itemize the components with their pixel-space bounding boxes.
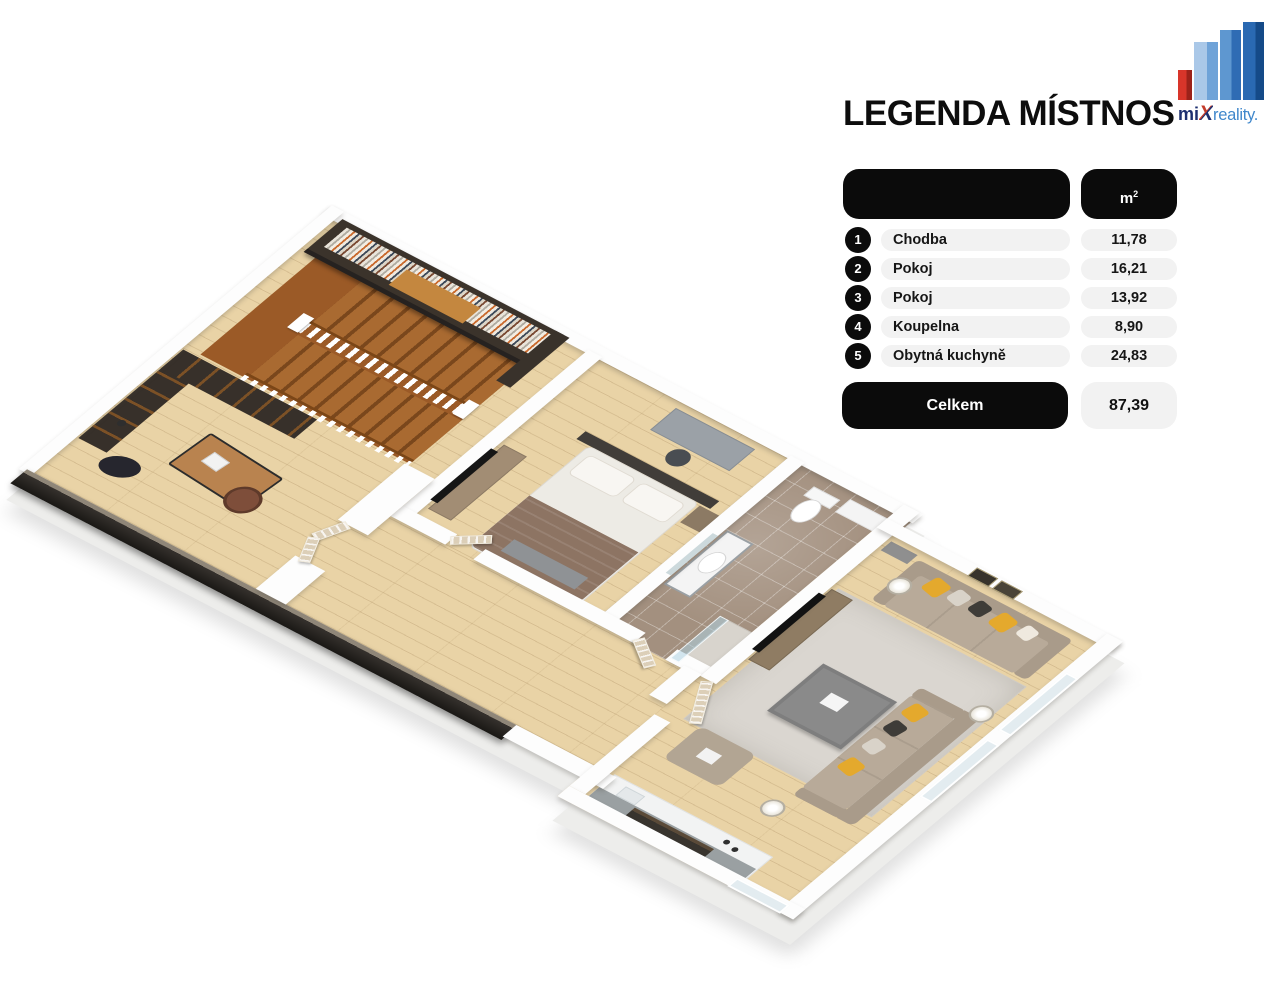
room-name-pill: Chodba xyxy=(881,229,1070,251)
legend-row: 1 Chodba 11,78 xyxy=(843,229,1183,255)
unit-label: m xyxy=(1120,190,1133,207)
logo-text-x: X xyxy=(1199,102,1213,125)
mixreality-wordmark: miXreality. xyxy=(1178,102,1280,126)
building-red-icon xyxy=(1178,70,1192,100)
room-number-badge: 3 xyxy=(845,285,871,311)
legend-row: 5 Obytná kuchyně 24,83 xyxy=(843,345,1183,371)
room-number-badge: 5 xyxy=(845,343,871,369)
logo-text-reality: reality. xyxy=(1213,106,1258,124)
room-area-pill: 16,21 xyxy=(1081,258,1177,280)
bedroom-door xyxy=(450,535,492,545)
legend-header-unit-pill: m2 xyxy=(1081,169,1177,219)
room-name-pill: Pokoj xyxy=(881,258,1070,280)
room-area-pill: 13,92 xyxy=(1081,287,1177,309)
legend-row: 3 Pokoj 13,92 xyxy=(843,287,1183,313)
legend-title: LEGENDA MÍSTNOSTÍ xyxy=(843,94,1205,134)
room-name-pill: Pokoj xyxy=(881,287,1070,309)
legend-total-value-pill: 87,39 xyxy=(1081,382,1177,429)
room-number-badge: 1 xyxy=(845,227,871,253)
room-name-pill: Koupelna xyxy=(881,316,1070,338)
unit-exponent: 2 xyxy=(1133,189,1138,199)
legend-total-label-pill: Celkem xyxy=(842,382,1068,429)
room-area-pill: 24,83 xyxy=(1081,345,1177,367)
room-number-badge: 4 xyxy=(845,314,871,340)
legend-row: 4 Koupelna 8,90 xyxy=(843,316,1183,342)
room-number-badge: 2 xyxy=(845,256,871,282)
legend-header-name-pill xyxy=(843,169,1070,219)
room-area-pill: 11,78 xyxy=(1081,229,1177,251)
mixreality-buildings-icon xyxy=(1178,22,1280,100)
room-name-pill: Obytná kuchyně xyxy=(881,345,1070,367)
legend-row: 2 Pokoj 16,21 xyxy=(843,258,1183,284)
building-lightblue-icon xyxy=(1194,42,1218,100)
room-area-pill: 8,90 xyxy=(1081,316,1177,338)
building-darkblue-icon xyxy=(1243,22,1264,100)
floor-plan-3d-render xyxy=(0,0,1280,960)
logo-text-mi: mi xyxy=(1178,104,1199,124)
mixreality-logo: miXreality. xyxy=(1174,20,1280,130)
building-blue-icon xyxy=(1220,30,1241,100)
